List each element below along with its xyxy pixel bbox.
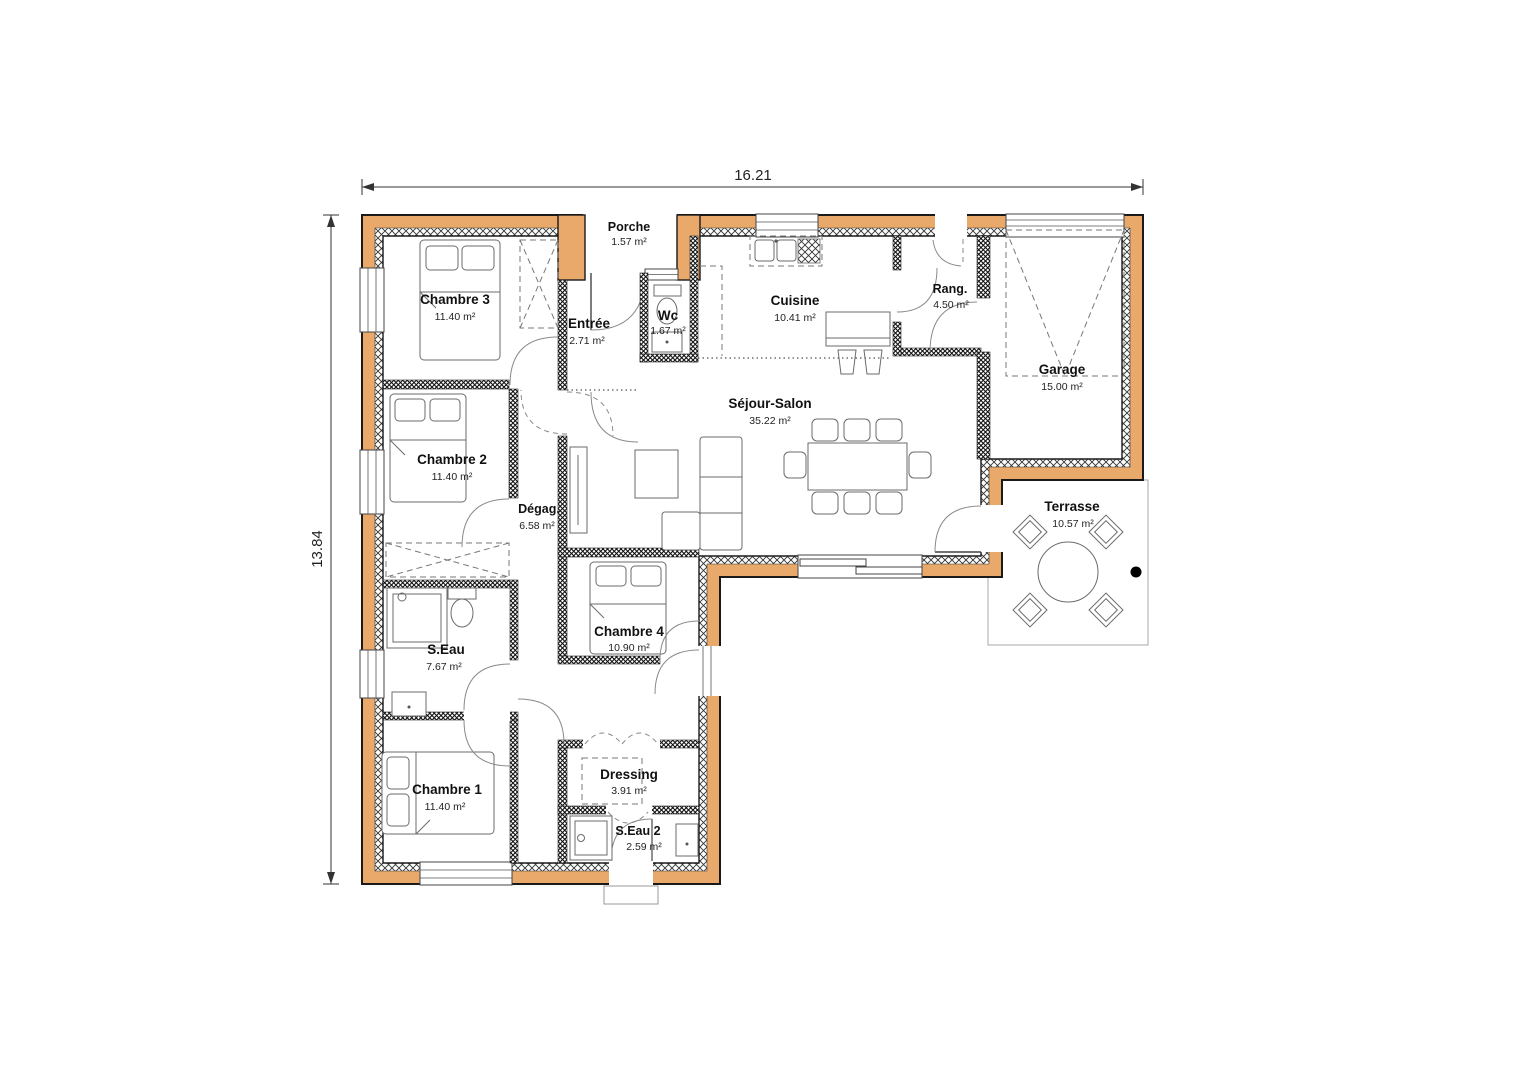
window-chambre2-icon: [360, 450, 384, 514]
room-area-wc: 1.67 m²: [650, 325, 686, 337]
room-area-chambre4: 10.90 m²: [608, 642, 650, 654]
room-label-chambre3: Chambre 3: [420, 292, 490, 307]
room-area-terrasse: 10.57 m²: [1052, 518, 1094, 530]
shower-icon: [570, 816, 612, 860]
room-area-seau2: 2.59 m²: [626, 841, 662, 853]
floor-plan-page: 16.21 13.84 Porche 1.57 m² Chambre 3 11.…: [0, 0, 1527, 1080]
dimension-height-label: 13.84: [309, 530, 326, 568]
seau2-exterior-door-opening: [609, 860, 653, 886]
room-label-seau: S.Eau: [427, 642, 465, 657]
room-area-porche: 1.57 m²: [611, 236, 647, 248]
dimension-width-label: 16.21: [734, 167, 772, 184]
room-label-dressing: Dressing: [600, 767, 658, 782]
room-area-degag: 6.58 m²: [519, 520, 555, 532]
room-area-dressing: 3.91 m²: [611, 785, 647, 797]
room-label-chambre4: Chambre 4: [594, 624, 664, 639]
room-area-seau: 7.67 m²: [426, 661, 462, 673]
kitchen-sink-icon: [750, 236, 822, 266]
window-chambre1-icon: [420, 862, 512, 885]
room-area-chambre2: 11.40 m²: [432, 471, 473, 483]
terrace-door-opening: [979, 505, 1004, 552]
room-label-wc: Wc: [658, 308, 679, 323]
room-area-rang: 4.50 m²: [933, 299, 969, 311]
window-seau-icon: [360, 650, 384, 698]
room-label-cuisine: Cuisine: [771, 293, 820, 308]
room-label-seau2: S.Eau 2: [615, 824, 660, 838]
terrace-light-dot-icon: [1131, 567, 1142, 578]
rang-exterior-door-opening: [935, 213, 967, 238]
room-label-terrasse: Terrasse: [1044, 499, 1100, 514]
room-area-chambre3: 11.40 m²: [435, 311, 476, 323]
coffee-table-icon: [635, 450, 678, 498]
garage-door-opening: [1006, 214, 1124, 237]
room-label-chambre2: Chambre 2: [417, 452, 487, 467]
room-area-sejour: 35.22 m²: [749, 415, 791, 427]
floor-plan: 16.21 13.84 Porche 1.57 m² Chambre 3 11.…: [0, 0, 1527, 1080]
room-area-cuisine: 10.41 m²: [774, 312, 816, 324]
room-label-garage: Garage: [1039, 362, 1086, 377]
room-label-degag: Dégag.: [518, 502, 560, 516]
sink-icon: [392, 692, 426, 716]
exterior-step: [604, 886, 658, 904]
bay-window-icon: [798, 555, 922, 578]
hall-exterior-door-opening: [697, 646, 723, 696]
room-area-entree: 2.71 m²: [569, 335, 605, 347]
room-label-chambre1: Chambre 1: [412, 782, 482, 797]
room-area-garage: 15.00 m²: [1041, 381, 1083, 393]
porch-left-wall: [558, 215, 585, 280]
sink-icon: [676, 824, 698, 856]
room-label-entree: Entrée: [568, 316, 611, 331]
window-cuisine-icon: [756, 214, 818, 237]
room-label-porche: Porche: [608, 220, 650, 234]
window-chambre3-icon: [360, 268, 384, 332]
room-label-sejour: Séjour-Salon: [728, 396, 811, 411]
bed-icon: [590, 562, 666, 654]
shower-icon: [387, 588, 447, 648]
terrace-round-table-icon: [1038, 542, 1098, 602]
bed-icon: [390, 394, 466, 502]
room-area-chambre1: 11.40 m²: [425, 801, 466, 813]
room-label-rang: Rang.: [933, 282, 968, 296]
